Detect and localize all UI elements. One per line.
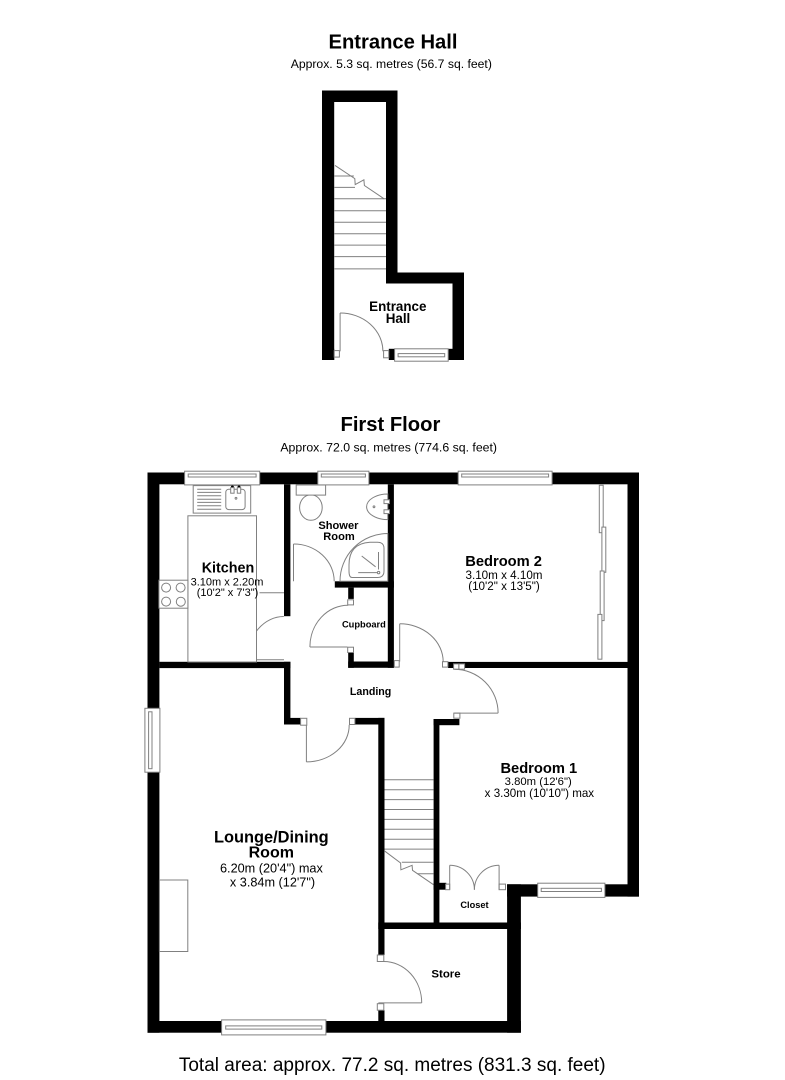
svg-text:Kitchen: Kitchen xyxy=(202,560,255,576)
svg-text:Room: Room xyxy=(249,845,294,862)
svg-text:Approx. 5.3 sq. metres (56.7 s: Approx. 5.3 sq. metres (56.7 sq. feet) xyxy=(291,57,492,71)
svg-text:Approx. 72.0 sq. metres (774.6: Approx. 72.0 sq. metres (774.6 sq. feet) xyxy=(280,440,497,454)
svg-text:(10'2" x 13'5"): (10'2" x 13'5") xyxy=(468,580,540,593)
svg-text:3.80m (12'6"): 3.80m (12'6") xyxy=(505,776,572,788)
svg-text:Bedroom 1: Bedroom 1 xyxy=(500,761,577,777)
svg-text:Store: Store xyxy=(431,968,460,980)
svg-text:Total area: approx. 77.2 sq. m: Total area: approx. 77.2 sq. metres (831… xyxy=(179,1055,606,1076)
svg-text:Entrance Hall: Entrance Hall xyxy=(328,31,457,53)
svg-text:Hall: Hall xyxy=(386,311,411,326)
svg-text:Landing: Landing xyxy=(350,686,391,698)
svg-text:x 3.84m (12'7"): x 3.84m (12'7") xyxy=(230,876,315,890)
svg-text:First Floor: First Floor xyxy=(340,414,440,436)
svg-text:Room: Room xyxy=(323,531,355,543)
svg-text:Bedroom 2: Bedroom 2 xyxy=(465,554,542,570)
svg-text:(10'2" x 7'3"): (10'2" x 7'3") xyxy=(197,587,259,599)
svg-text:x 3.30m (10'10") max: x 3.30m (10'10") max xyxy=(485,787,595,800)
svg-text:6.20m (20'4") max: 6.20m (20'4") max xyxy=(220,862,323,876)
svg-text:Shower: Shower xyxy=(318,520,359,532)
svg-text:Cupboard: Cupboard xyxy=(342,619,386,629)
svg-text:Closet: Closet xyxy=(460,900,488,910)
